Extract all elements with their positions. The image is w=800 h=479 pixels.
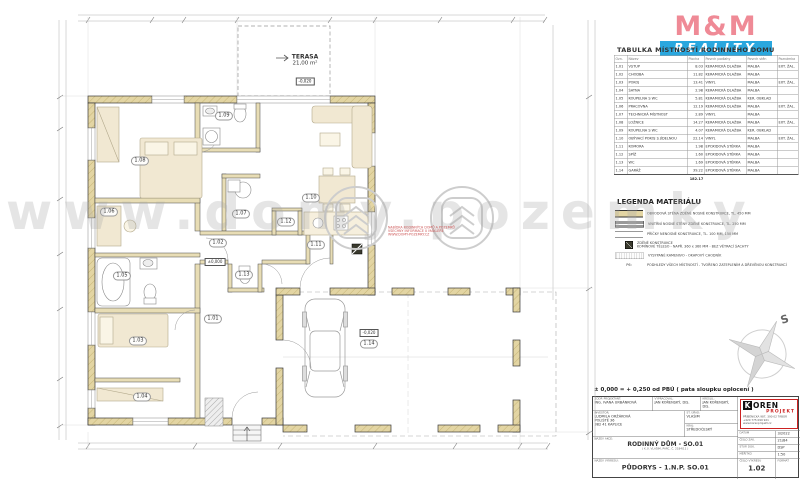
datum-label: DATUM: [740, 432, 775, 435]
table-cell: [777, 150, 798, 158]
table-cell: EXT. ŽAL.: [777, 134, 798, 142]
table-cell: [777, 110, 798, 118]
table-cell: VINYL: [704, 78, 746, 86]
table-cell: GARÁŽ: [627, 166, 687, 174]
table-cell: 1.02: [614, 70, 627, 78]
meritko-label: MĚŘÍTKO: [740, 453, 775, 456]
table-row: 1.12SPÍŽ1.60EPOXIDOVÁ STĚRKAMALBA: [614, 150, 798, 158]
room-label: 1.14: [360, 340, 378, 349]
table-cell: 1.08: [614, 118, 627, 126]
koren-address: PŘÍBĚNICKÁ 987, 390 02 TÁBOR +420 775 09…: [743, 416, 795, 426]
table-cell: 13.41: [687, 78, 704, 86]
table-row: 1.13WC1.69EPOXIDOVÁ STĚRKAMALBA: [614, 158, 798, 166]
compass-label: S: [779, 312, 791, 327]
terrace-label: TERASA 21,00 m² -0,020: [292, 54, 318, 87]
cislo-zak-value: 21/84: [778, 439, 799, 443]
legend-item: ZDĚNÉ KONSTRUKCE KOMÍNOVÉ TĚLESO - NAPŘ.…: [615, 241, 800, 249]
meritko-value: 1:50: [778, 453, 799, 457]
table-cell: EXT. ŽAL.: [777, 62, 798, 70]
table-cell: MALBA: [746, 78, 777, 86]
table-cell: KOMORA: [627, 142, 687, 150]
table-cell: 12.19: [687, 102, 704, 110]
room-table: Ozn.NázevPlochaPovrch podlahyPovrch stěn…: [614, 55, 798, 191]
vykres-label: NÁZEV VÝKRESU:: [595, 460, 737, 463]
legend-swatch-icon: [615, 253, 644, 260]
room-table-column-header: Ozn.: [614, 55, 627, 62]
table-cell: MALBA: [746, 134, 777, 142]
room-table-header: Ozn.NázevPlochaPovrch podlahyPovrch stěn…: [614, 55, 798, 62]
table-row: 1.01VSTUP8.03KERAMICKÁ DLAŽBAMALBAEXT. Ž…: [614, 62, 798, 70]
cislo-vyk-value: 1.02: [740, 465, 775, 473]
table-cell: 39.22: [687, 166, 704, 174]
table-cell: 22.14: [687, 134, 704, 142]
table-cell: 1.09: [614, 126, 627, 134]
table-cell: 1.12: [614, 150, 627, 158]
st-urad-value: VLAŠIM: [687, 415, 737, 419]
table-cell: [777, 158, 798, 166]
cislo-vyk-label: ČÍSLO VÝKRESU: [740, 460, 775, 463]
table-cell: MALBA: [746, 86, 777, 94]
table-cell: POKOJ: [627, 78, 687, 86]
room-label: 1.12: [277, 218, 295, 227]
table-row: 1.10OBÝVACÍ POKOJ S JÍDELNOU22.14VINYLMA…: [614, 134, 798, 142]
table-cell: KERAMICKÁ DLAŽBA: [704, 102, 746, 110]
table-cell: EPOXIDOVÁ STĚRKA: [704, 150, 746, 158]
table-cell: 1.69: [687, 158, 704, 166]
table-cell: 2.98: [687, 86, 704, 94]
table-cell: 5.81: [687, 94, 704, 102]
table-cell: KOUPELNA S WC: [627, 94, 687, 102]
legend-swatch-icon: [615, 210, 643, 218]
table-cell: 1.07: [614, 110, 627, 118]
akce-sub: ( K.Ú. VLAŠIM, PARC. Č. 2184/11 ): [595, 448, 737, 451]
legend-item: VYSYPANÉ KAMENIVO - OKAPOVÝ CHODNÍK: [615, 253, 800, 260]
table-cell: 1.03: [614, 78, 627, 86]
mm-logo-text: M&M: [660, 14, 772, 40]
north-compass: S: [726, 306, 798, 398]
table-cell: KERAMICKÁ DLAŽBA: [704, 70, 746, 78]
table-cell: 2.89: [687, 110, 704, 118]
room-table-column-header: Název: [627, 55, 687, 62]
legend-item: VNITŘNÍ NOSNÉ STĚNY ZDĚNÉ KONSTRUKCE, TL…: [615, 221, 800, 228]
table-cell: OBÝVACÍ POKOJ S JÍDELNOU: [627, 134, 687, 142]
table-cell: VINYL: [704, 134, 746, 142]
table-cell: 1.10: [614, 134, 627, 142]
table-cell: EPOXIDOVÁ STĚRKA: [704, 166, 746, 174]
table-cell: 8.03: [687, 62, 704, 70]
table-cell: [777, 166, 798, 174]
table-cell: [777, 94, 798, 102]
table-cell: 1.04: [614, 86, 627, 94]
table-cell: EPOXIDOVÁ STĚRKA: [704, 142, 746, 150]
akce-value: RODINNÝ DŮM - SO.01: [595, 441, 737, 448]
room-table-column-header: Povrch podlahy: [704, 55, 746, 62]
room-table-column-header: Poznámka: [777, 55, 798, 62]
table-cell: MALBA: [746, 142, 777, 150]
table-cell: 1.06: [614, 102, 627, 110]
table-cell: 1.98: [687, 142, 704, 150]
table-cell: 1.01: [614, 62, 627, 70]
room-table-column-header: Povrch stěn: [746, 55, 777, 62]
format-label: FORMÁT: [778, 460, 799, 463]
table-cell: 1.14: [614, 166, 627, 174]
table-cell: MALBA: [746, 166, 777, 174]
vypracoval-value: JAN KOŘENSKÝ, DiS.: [655, 401, 700, 405]
table-cell: 1.11: [614, 142, 627, 150]
legend-item: OBVODOVÁ STĚNA ZDĚNÉ NOSNÉ KONSTRUKCE, T…: [615, 210, 800, 218]
table-cell: EXT. ŽAL.: [777, 102, 798, 110]
cislo-zak-label: ČÍSLO ZAK.: [740, 439, 775, 442]
terrace-area: 21,00 m²: [292, 61, 318, 68]
table-row: 1.02CHODBA11.82KERAMICKÁ DLAŽBAMALBA: [614, 70, 798, 78]
table-cell: TECHNICKÁ MÍSTNOST: [627, 110, 687, 118]
table-cell: VSTUP: [627, 62, 687, 70]
table-cell: MALBA: [746, 110, 777, 118]
table-cell: 1.60: [687, 150, 704, 158]
table-row: 1.09KOUPELNA S WC4.07KERAMICKÁ DLAŽBAKER…: [614, 126, 798, 134]
stup-label: STUP. DOK.: [740, 446, 775, 449]
stup-value: DSP: [778, 446, 799, 450]
legend-item-text: PODHLEDY VŠECH MÍSTNOSTÍ - TVOŘENO ZATEP…: [647, 263, 787, 267]
legend-title: LEGENDA MATERIÁLU: [617, 198, 701, 206]
room-label: 1.04: [133, 393, 151, 402]
table-cell: MALBA: [746, 102, 777, 110]
table-row: 1.11KOMORA1.98EPOXIDOVÁ STĚRKAMALBA: [614, 142, 798, 150]
room-label: 1.03: [129, 337, 147, 346]
table-cell: [777, 86, 798, 94]
table-cell: VINYL: [704, 110, 746, 118]
material-legend: OBVODOVÁ STĚNA ZDĚNÉ NOSNÉ KONSTRUKCE, T…: [615, 210, 800, 302]
table-cell: PRACOVNA: [627, 102, 687, 110]
room-label: 1.07: [232, 210, 250, 219]
table-cell: EXT. ŽAL.: [777, 78, 798, 86]
vykres-value: PŮDORYS - 1.N.P. SO.01: [595, 464, 737, 472]
table-row: 1.03POKOJ13.41VINYLMALBAEXT. ŽAL.: [614, 78, 798, 86]
table-cell: CHODBA: [627, 70, 687, 78]
table-row: 1.07TECHNICKÁ MÍSTNOST2.89VINYLMALBA: [614, 110, 798, 118]
table-cell: KERAMICKÁ DLAŽBA: [704, 62, 746, 70]
room-label: 1.01: [204, 315, 222, 324]
table-cell: MALBA: [746, 150, 777, 158]
table-cell: 14.27: [687, 118, 704, 126]
room-label: 1.13: [235, 271, 253, 280]
room-table-title: TABULKA MÍSTNOSTÍ RODINNÉHO DOMU: [617, 46, 775, 54]
table-cell: 1.05: [614, 94, 627, 102]
table-cell: EXT. ŽAL.: [777, 118, 798, 126]
table-row: 1.06PRACOVNA12.19KERAMICKÁ DLAŽBAMALBAEX…: [614, 102, 798, 110]
table-row: 1.04ŠATNA2.98KERAMICKÁ DLAŽBAMALBA: [614, 86, 798, 94]
datum-value: 3/2022: [778, 432, 799, 436]
table-cell: MALBA: [746, 118, 777, 126]
table-cell: KOUPELNA S WC: [627, 126, 687, 134]
table-row: 1.08LOŽNICE14.27KERAMICKÁ DLAŽBAMALBAEXT…: [614, 118, 798, 126]
legend-swatch-icon: [615, 231, 643, 238]
room-label: 1.10: [302, 194, 320, 203]
legend-item-text: VYSYPANÉ KAMENIVO - OKAPOVÝ CHODNÍK: [648, 254, 721, 258]
room-label: 1.09: [215, 112, 233, 121]
legend-item: P6:PODHLEDY VŠECH MÍSTNOSTÍ - TVOŘENO ZA…: [615, 263, 800, 269]
table-cell: 11.82: [687, 70, 704, 78]
table-cell: [777, 70, 798, 78]
legend-item-text: PŘÍČKY NENOSNÉ KONSTRUKCE, TL. 100 MM, 1…: [647, 232, 738, 236]
table-cell: [777, 142, 798, 150]
table-cell: WC: [627, 158, 687, 166]
legend-swatch-icon: P6:: [615, 263, 643, 269]
legend-swatch-icon: [615, 221, 644, 228]
room-label: 1.05: [113, 272, 131, 281]
room-table-column-header: Plocha: [687, 55, 704, 62]
table-cell: 4.07: [687, 126, 704, 134]
floor-elevation: ±0,000: [205, 258, 226, 266]
scale-note: ± 0,000 = + 0,250 od PBÚ ( pata sloupku …: [594, 387, 754, 393]
room-label: 1.06: [100, 208, 118, 217]
legend-item-text: VNITŘNÍ NOSNÉ STĚNY ZDĚNÉ KONSTRUKCE, TL…: [648, 222, 746, 226]
table-cell: KERAMICKÁ DLAŽBA: [704, 126, 746, 134]
room-label: 1.02: [209, 239, 227, 248]
koren-k: K: [743, 401, 752, 410]
drawing-sheet: 1.011.021.031.041.051.061.071.081.091.10…: [0, 0, 800, 479]
table-cell: MALBA: [746, 70, 777, 78]
koren-projekt-logo: K OREN PROJEKT PŘÍBĚNICKÁ 987, 390 02 TÁ…: [740, 399, 798, 429]
table-cell: [777, 126, 798, 134]
room-table-total-row: 182.17: [614, 175, 798, 183]
legend-swatch-icon: [625, 241, 633, 249]
legend-item-text: OBVODOVÁ STĚNA ZDĚNÉ NOSNÉ KONSTRUKCE, T…: [647, 212, 751, 216]
table-row: 1.05KOUPELNA S WC5.81KERAMICKÁ DLAŽBAKER…: [614, 94, 798, 102]
garage-elevation: -0,020: [360, 329, 379, 337]
terrace-elevation: -0,020: [296, 78, 315, 86]
table-cell: KERAMICKÁ DLAŽBA: [704, 118, 746, 126]
table-cell: ŠATNA: [627, 86, 687, 94]
table-cell: EPOXIDOVÁ STĚRKA: [704, 158, 746, 166]
table-cell: SPÍŽ: [627, 150, 687, 158]
room-label: 1.11: [307, 241, 325, 250]
table-row: 1.14GARÁŽ39.22EPOXIDOVÁ STĚRKAMALBA: [614, 166, 798, 174]
table-cell: KERAMICKÁ DLAŽBA: [704, 94, 746, 102]
room-label: 1.08: [131, 157, 149, 166]
table-cell: KER. OBKLAD: [746, 94, 777, 102]
table-cell: KERAMICKÁ DLAŽBA: [704, 86, 746, 94]
table-cell: MALBA: [746, 158, 777, 166]
legend-item: PŘÍČKY NENOSNÉ KONSTRUKCE, TL. 100 MM, 1…: [615, 231, 800, 238]
title-block: ZODP. PROJEKTANT: ING. IVANA URBÁNKOVÁ V…: [592, 396, 799, 478]
table-cell: KER. OBKLAD: [746, 126, 777, 134]
table-cell: 1.13: [614, 158, 627, 166]
table-cell: MALBA: [746, 62, 777, 70]
kreslil-value: JAN KOŘENSKÝ, DiS.: [703, 401, 737, 409]
room-table-total: 182.17: [687, 175, 704, 183]
legend-item-text: ZDĚNÉ KONSTRUKCE KOMÍNOVÉ TĚLESO - NAPŘ.…: [637, 241, 749, 249]
table-cell: LOŽNICE: [627, 118, 687, 126]
terrace-name: TERASA: [292, 54, 318, 61]
kraj-value: STŘEDOČESKÝ: [687, 428, 737, 432]
